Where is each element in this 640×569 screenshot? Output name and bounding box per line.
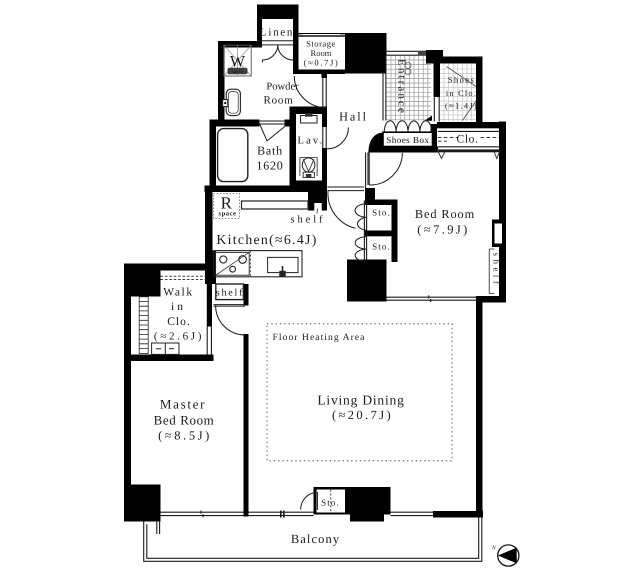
svg-text:(≈7.9J): (≈7.9J): [417, 223, 469, 237]
svg-text:Entrance: Entrance: [396, 59, 408, 115]
svg-text:(≈1.4J): (≈1.4J): [445, 102, 478, 111]
svg-text:Sto.: Sto.: [372, 208, 391, 218]
svg-text:Sto.: Sto.: [372, 242, 391, 252]
svg-text:(≈0.7J): (≈0.7J): [304, 58, 340, 68]
svg-text:(≈2.6J): (≈2.6J): [154, 331, 204, 343]
svg-text:Clo.: Clo.: [167, 316, 191, 328]
svg-text:Kitchen(≈6.4J): Kitchen(≈6.4J): [216, 232, 317, 247]
svg-text:1620: 1620: [256, 159, 283, 173]
svg-text:Balcony: Balcony: [291, 532, 340, 546]
svg-text:N: N: [491, 546, 496, 552]
svg-text:Room: Room: [310, 48, 331, 58]
svg-text:Room: Room: [263, 95, 293, 107]
svg-text:shelf: shelf: [491, 253, 501, 288]
svg-text:Bed Room: Bed Room: [154, 413, 215, 428]
svg-text:Hall: Hall: [339, 110, 368, 124]
svg-text:(≈8.5J): (≈8.5J): [158, 429, 212, 443]
svg-text:Lav.: Lav.: [297, 136, 324, 147]
svg-text:in Clo.: in Clo.: [446, 89, 477, 98]
svg-text:Master: Master: [160, 397, 206, 412]
svg-text:in: in: [171, 301, 186, 313]
svg-text:shelf: shelf: [216, 287, 244, 298]
svg-text:(≈20.7J): (≈20.7J): [332, 408, 393, 422]
svg-text:Bed Room: Bed Room: [415, 207, 475, 221]
svg-text:shelf: shelf: [291, 215, 326, 226]
svg-text:Clo.: Clo.: [457, 134, 479, 146]
svg-text:space: space: [232, 69, 244, 75]
svg-text:Bath: Bath: [257, 144, 283, 158]
svg-text:Walk: Walk: [163, 286, 193, 298]
svg-text:Powder: Powder: [266, 82, 299, 93]
svg-text:Storage: Storage: [306, 39, 336, 49]
svg-text:Shoes Box: Shoes Box: [386, 135, 429, 145]
svg-text:Sto.: Sto.: [321, 498, 340, 508]
svg-text:Shoes: Shoes: [448, 76, 476, 85]
svg-text:Living Dining: Living Dining: [317, 393, 404, 408]
svg-text:Floor Heating Area: Floor Heating Area: [273, 332, 366, 343]
svg-text:space: space: [219, 211, 237, 218]
svg-text:Linen: Linen: [260, 27, 294, 39]
